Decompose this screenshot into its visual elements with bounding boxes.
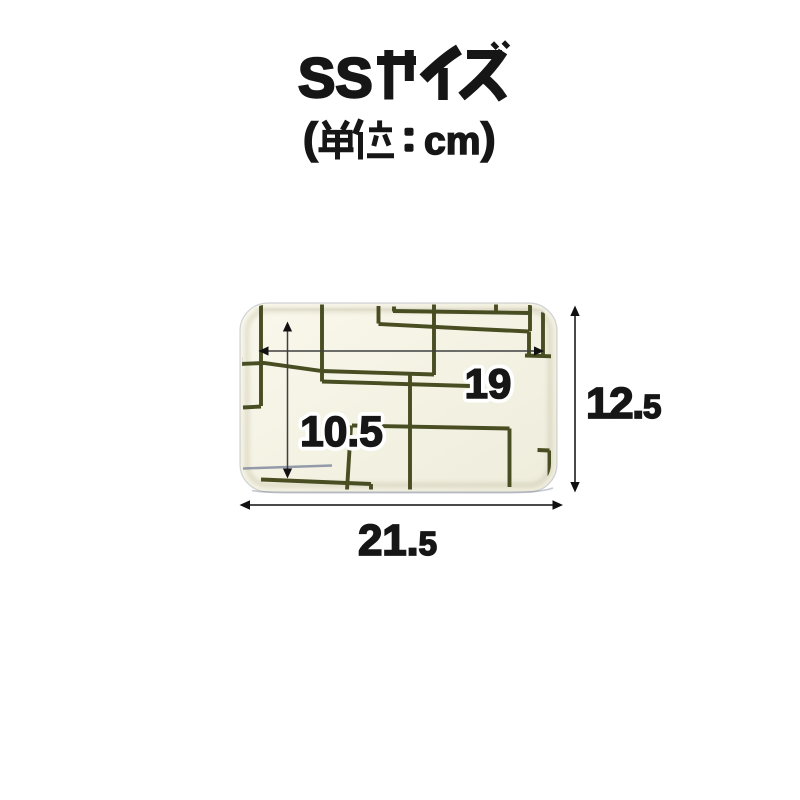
svg-text:21.5: 21.5 [358, 516, 437, 565]
svg-text:cm: cm [424, 120, 481, 163]
svg-text:(: ( [303, 114, 318, 163]
svg-text:12.5: 12.5 [586, 379, 661, 428]
svg-text:SS: SS [298, 46, 373, 109]
svg-text:19: 19 [465, 360, 512, 407]
svg-text:): ) [481, 114, 496, 163]
svg-text:10.5: 10.5 [300, 409, 383, 456]
